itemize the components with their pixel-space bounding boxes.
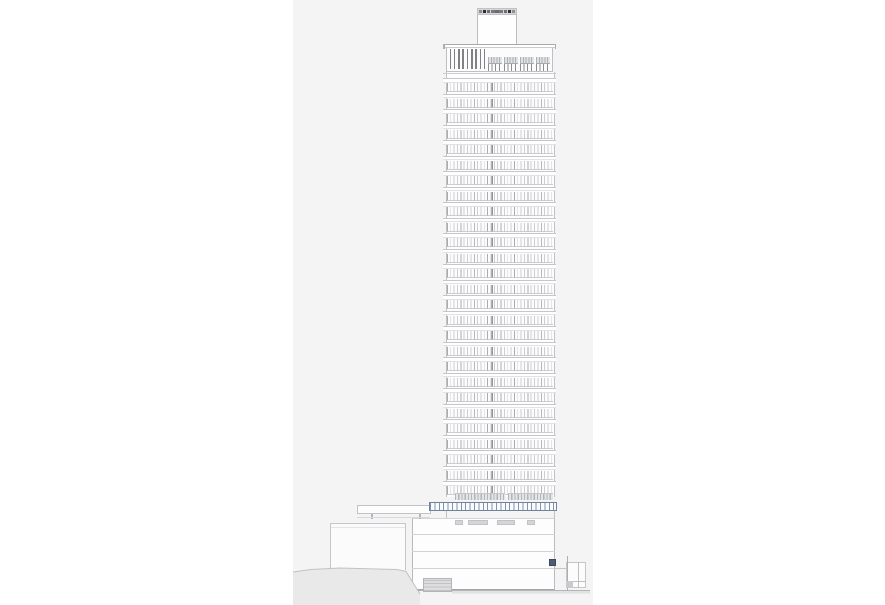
hatch-strip bbox=[455, 493, 505, 500]
equipment-box bbox=[549, 559, 556, 566]
curtain-wall-band bbox=[429, 502, 557, 511]
exterior-stair-box bbox=[423, 578, 452, 592]
parapet-tab bbox=[555, 44, 557, 49]
parapet-tab bbox=[443, 44, 445, 49]
ground-profile bbox=[293, 0, 593, 605]
hatch-strip bbox=[508, 493, 553, 500]
elevation-drawing bbox=[0, 0, 885, 605]
ground-mound bbox=[293, 568, 420, 605]
